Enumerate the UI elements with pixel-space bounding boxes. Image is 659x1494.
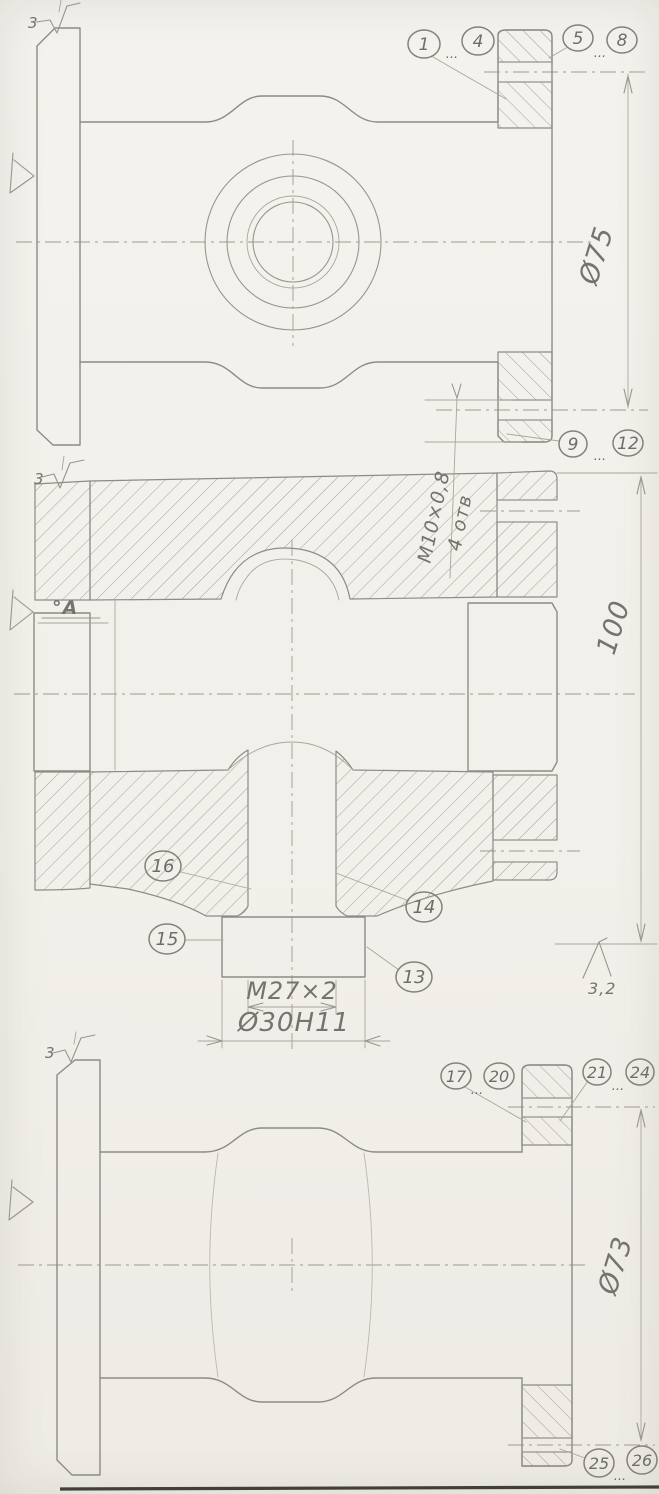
balloon-20: 20 [489, 1067, 509, 1086]
balloon-5: 5 [573, 29, 584, 49]
balloon-17: 17 [446, 1067, 467, 1086]
balloon-13-text: 13 [403, 967, 426, 988]
balloon-15: 15 [149, 924, 223, 954]
balloon-12: 12 [617, 434, 639, 454]
middle-upper-body-section [35, 471, 557, 600]
dim-phi30-text: Ø30H11 [237, 1008, 350, 1038]
dim-100: 100 [555, 473, 657, 944]
dim-phi73: Ø73 [592, 1109, 645, 1441]
roughness-value-top: 3 [28, 14, 39, 32]
middle-view: °A 3 M10×0,8 4 отв 100 [10, 384, 657, 1050]
machining-check-top-left-edge [10, 153, 34, 193]
bottom-right-flange-section [522, 1065, 572, 1466]
balloon-13: 13 [367, 947, 432, 992]
balloon-dots-25-26: ... [614, 1469, 626, 1484]
datum-label-a: °A [38, 597, 108, 623]
balloon-group-5-8: 5 ... 8 [549, 25, 637, 61]
middle-stem-boss [222, 917, 365, 977]
balloon-dots-1-4: ... [446, 47, 458, 62]
top-left-flange [37, 28, 80, 445]
bottom-left-flange [57, 1060, 100, 1475]
dim-phi73-text: Ø73 [592, 1233, 639, 1299]
balloon-dots-21-24: ... [612, 1079, 624, 1094]
roughness-ra-text: 3,2 [588, 979, 616, 998]
balloon-25: 25 [589, 1454, 609, 1473]
scan-edge-artifact [60, 1487, 659, 1489]
roughness-value-mid: 3 [34, 470, 45, 488]
balloon-14-text: 14 [413, 897, 436, 918]
balloon-group-17-20: 17 ... 20 [441, 1063, 526, 1122]
dim-100-text: 100 [591, 597, 637, 658]
roughness-mark-bot: 3 [45, 1032, 95, 1062]
balloon-26: 26 [632, 1451, 652, 1470]
balloon-group-21-24: 21 ... 24 [560, 1059, 654, 1121]
balloon-group-1-4: 1 ... 4 [408, 27, 506, 99]
middle-left-port [34, 600, 115, 771]
balloon-dots-17-20: ... [471, 1083, 483, 1098]
balloon-24: 24 [630, 1063, 650, 1082]
top-view: 3 Ø75 1 ... 4 5 ... 8 [10, 0, 648, 464]
dim-m27-text: M27×2 [246, 977, 338, 1005]
balloon-16-text: 16 [152, 856, 175, 877]
balloon-21: 21 [587, 1063, 607, 1082]
scanned-drawing-sheet: 3 Ø75 1 ... 4 5 ... 8 [0, 0, 659, 1494]
bottom-view: 3 Ø73 17 ... 20 21 ... 24 [9, 1032, 657, 1484]
balloon-group-25-26: 25 ... 26 [560, 1446, 657, 1484]
middle-lower-body-section [35, 742, 557, 916]
balloon-dots-5-8: ... [594, 46, 606, 61]
balloon-4: 4 [473, 32, 484, 52]
top-right-flange-section [498, 30, 552, 442]
balloon-15-text: 15 [156, 929, 179, 950]
machining-check-mid-left-edge [10, 590, 33, 630]
machining-check-bot-left-edge [9, 1180, 33, 1220]
roughness-mark-bottom-right: 3,2 [583, 938, 616, 998]
balloon-1: 1 [419, 35, 430, 55]
middle-right-port [468, 603, 557, 771]
drawing-canvas: 3 Ø75 1 ... 4 5 ... 8 [0, 0, 659, 1494]
balloon-9: 9 [568, 435, 579, 455]
balloon-8: 8 [617, 31, 628, 51]
balloon-dots-9-12: ... [594, 449, 606, 464]
dim-phi75-text: Ø75 [573, 223, 620, 289]
dim-phi75: Ø75 [573, 74, 632, 408]
datum-a-text: °A [52, 597, 78, 619]
